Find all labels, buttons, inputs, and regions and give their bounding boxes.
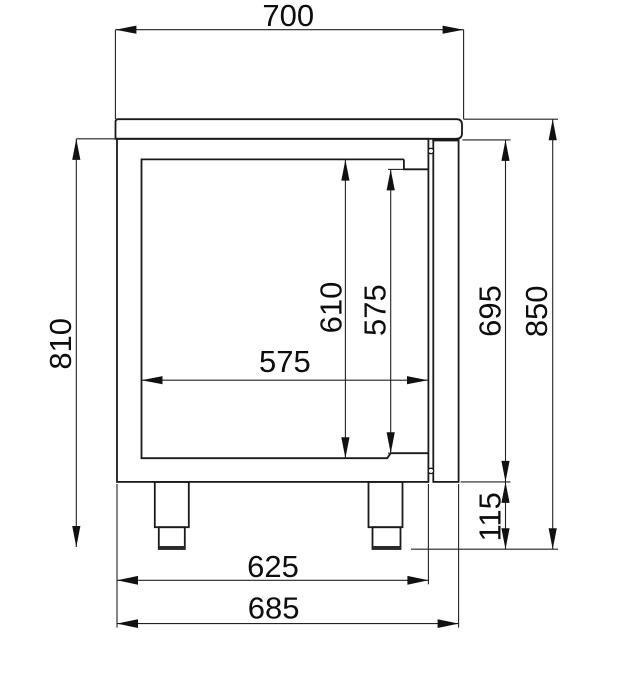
svg-text:850: 850 [519, 285, 554, 337]
svg-text:610: 610 [313, 282, 348, 334]
svg-text:685: 685 [248, 591, 300, 626]
svg-text:575: 575 [357, 284, 392, 336]
svg-text:810: 810 [43, 318, 78, 370]
svg-text:695: 695 [473, 285, 508, 337]
svg-text:115: 115 [473, 492, 508, 541]
svg-text:700: 700 [262, 0, 314, 33]
svg-text:625: 625 [247, 549, 299, 584]
svg-text:575: 575 [259, 344, 311, 379]
